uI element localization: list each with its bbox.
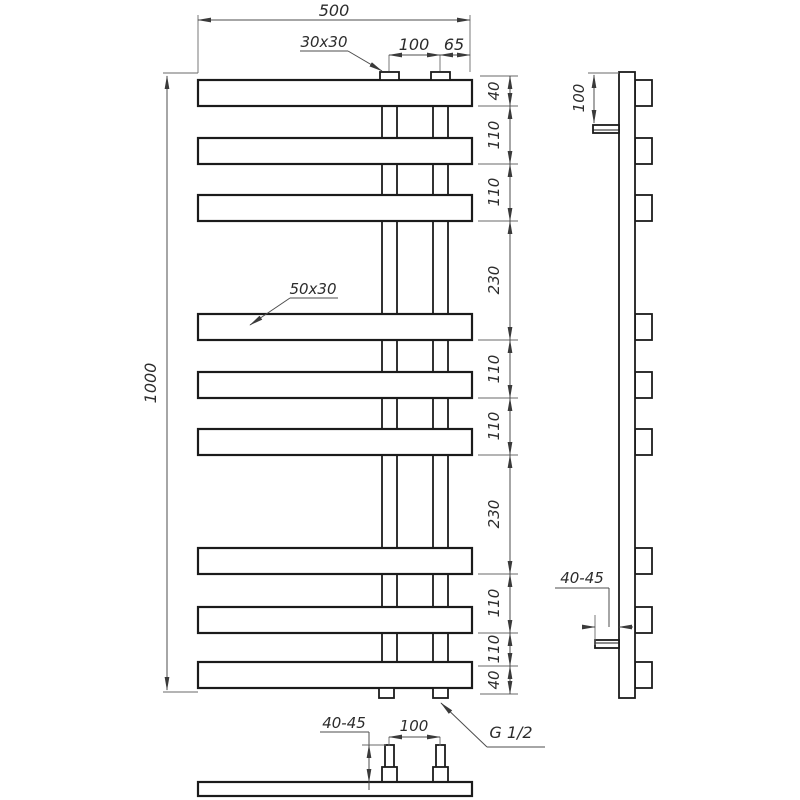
dim-chain-4: 110 [485,355,503,384]
dim-chain-0: 40 [485,81,503,100]
dim-chain-6: 230 [485,500,503,529]
dim-bottom-pipe-spacing: 100 [400,717,429,735]
towel-bar [198,607,472,633]
side-bar-end [635,314,652,340]
riser-top-cap [380,72,399,80]
towel-bar [198,429,472,455]
label-thread: G 1/2 [489,723,532,742]
side-bar-end [635,662,652,688]
side-bar-end [635,429,652,455]
dim-chain-1: 110 [485,121,503,150]
wall-bracket-top [593,125,619,133]
side-bar-end [635,138,652,164]
dim-height-overall: 1000 [141,363,160,404]
dim-pipe-edge-offset: 65 [444,35,464,54]
towel-bar [198,138,472,164]
riser-top-cap [431,72,450,80]
towel-bar [198,662,472,688]
towel-bar [198,314,472,340]
dim-pipe-spacing-top: 100 [399,35,430,54]
connector-stem [385,745,394,768]
side-bar-end [635,548,652,574]
bottom-connector-stub [433,688,448,698]
side-bar-end [635,607,652,633]
wall-bracket-bottom [595,640,619,648]
dim-side-top-offset: 100 [570,84,588,113]
dim-chain-3: 230 [485,266,503,295]
dim-chain-2: 110 [485,178,503,207]
bottom-connector-stub [379,688,394,698]
dim-chain-9: 40 [485,670,503,689]
dim-width-top: 500 [319,1,350,20]
towel-bar [198,548,472,574]
drawing-svg: 500 100 65 30x30 50x30 1000 [0,0,800,800]
connector-stem [436,745,445,768]
side-bar-end [635,80,652,106]
side-bar-end [635,195,652,221]
connector-base [382,767,397,782]
dim-chain-5: 110 [485,412,503,441]
connector-base [433,767,448,782]
towel-bar [198,80,472,106]
dim-chain-8: 110 [485,635,503,664]
dim-bottom-wall-gap: 40-45 [322,714,366,732]
bottom-view: 40-45 100 G 1/2 [198,703,545,796]
towel-bar [198,195,472,221]
side-view: 100 40-45 [555,72,652,698]
side-bar-end [635,372,652,398]
side-riser-column [619,72,635,698]
front-view [198,72,472,698]
towel-bar [198,372,472,398]
dim-side-wall-gap: 40-45 [560,569,604,587]
label-profile-50x30: 50x30 [289,280,336,298]
label-profile-30x30: 30x30 [300,33,347,51]
technical-drawing-towel-rail: 500 100 65 30x30 50x30 1000 [0,0,800,800]
bottom-bar-profile [198,782,472,796]
dim-chain-7: 110 [485,589,503,618]
